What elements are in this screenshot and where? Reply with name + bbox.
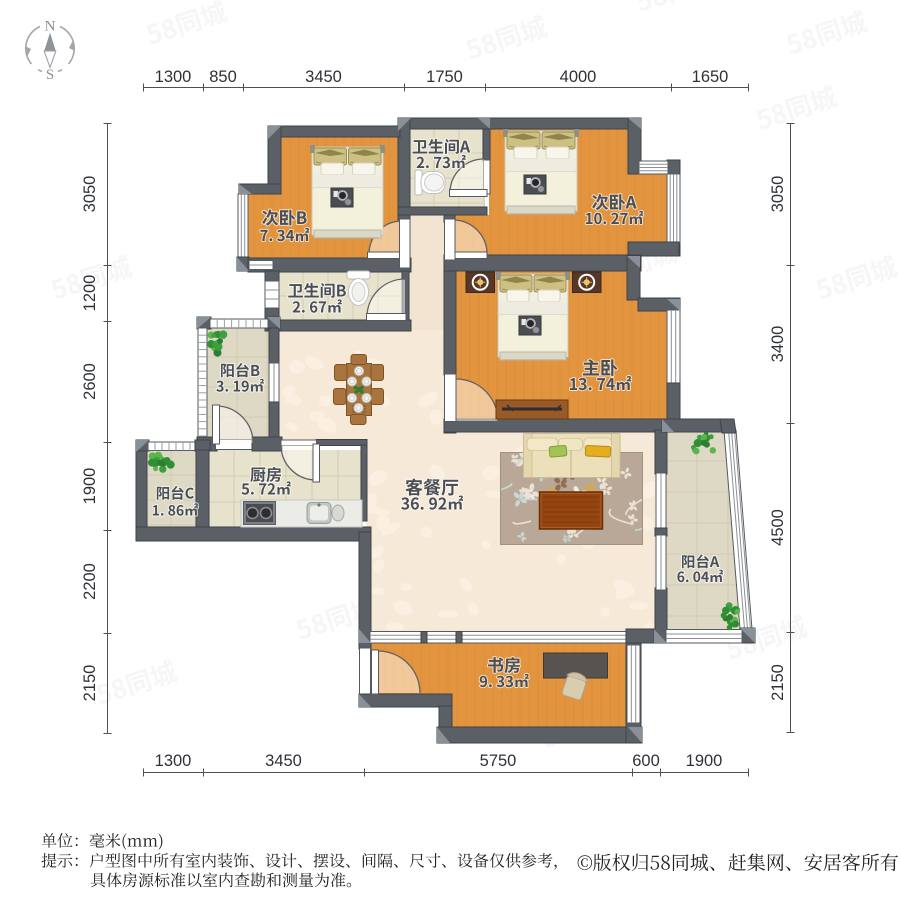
svg-text:3400: 3400 — [769, 326, 787, 363]
svg-text:2200: 2200 — [81, 563, 99, 600]
svg-text:1200: 1200 — [81, 275, 99, 312]
svg-text:1750: 1750 — [426, 68, 463, 86]
svg-text:3450: 3450 — [305, 68, 342, 86]
svg-text:850: 850 — [209, 68, 237, 86]
svg-text:1900: 1900 — [686, 752, 723, 770]
svg-text:2150: 2150 — [81, 665, 99, 702]
svg-text:3450: 3450 — [265, 752, 302, 770]
svg-text:2600: 2600 — [81, 363, 99, 400]
svg-text:4500: 4500 — [769, 509, 787, 546]
svg-text:S: S — [46, 67, 54, 83]
svg-text:1900: 1900 — [81, 468, 99, 505]
svg-text:5750: 5750 — [480, 752, 517, 770]
svg-text:1650: 1650 — [692, 68, 729, 86]
svg-text:2150: 2150 — [769, 664, 787, 701]
svg-text:1300: 1300 — [155, 68, 192, 86]
svg-text:3050: 3050 — [769, 176, 787, 213]
svg-text:3050: 3050 — [81, 176, 99, 213]
svg-text:600: 600 — [632, 752, 660, 770]
svg-text:N: N — [45, 19, 56, 35]
svg-text:1300: 1300 — [155, 752, 192, 770]
svg-text:4000: 4000 — [560, 68, 597, 86]
